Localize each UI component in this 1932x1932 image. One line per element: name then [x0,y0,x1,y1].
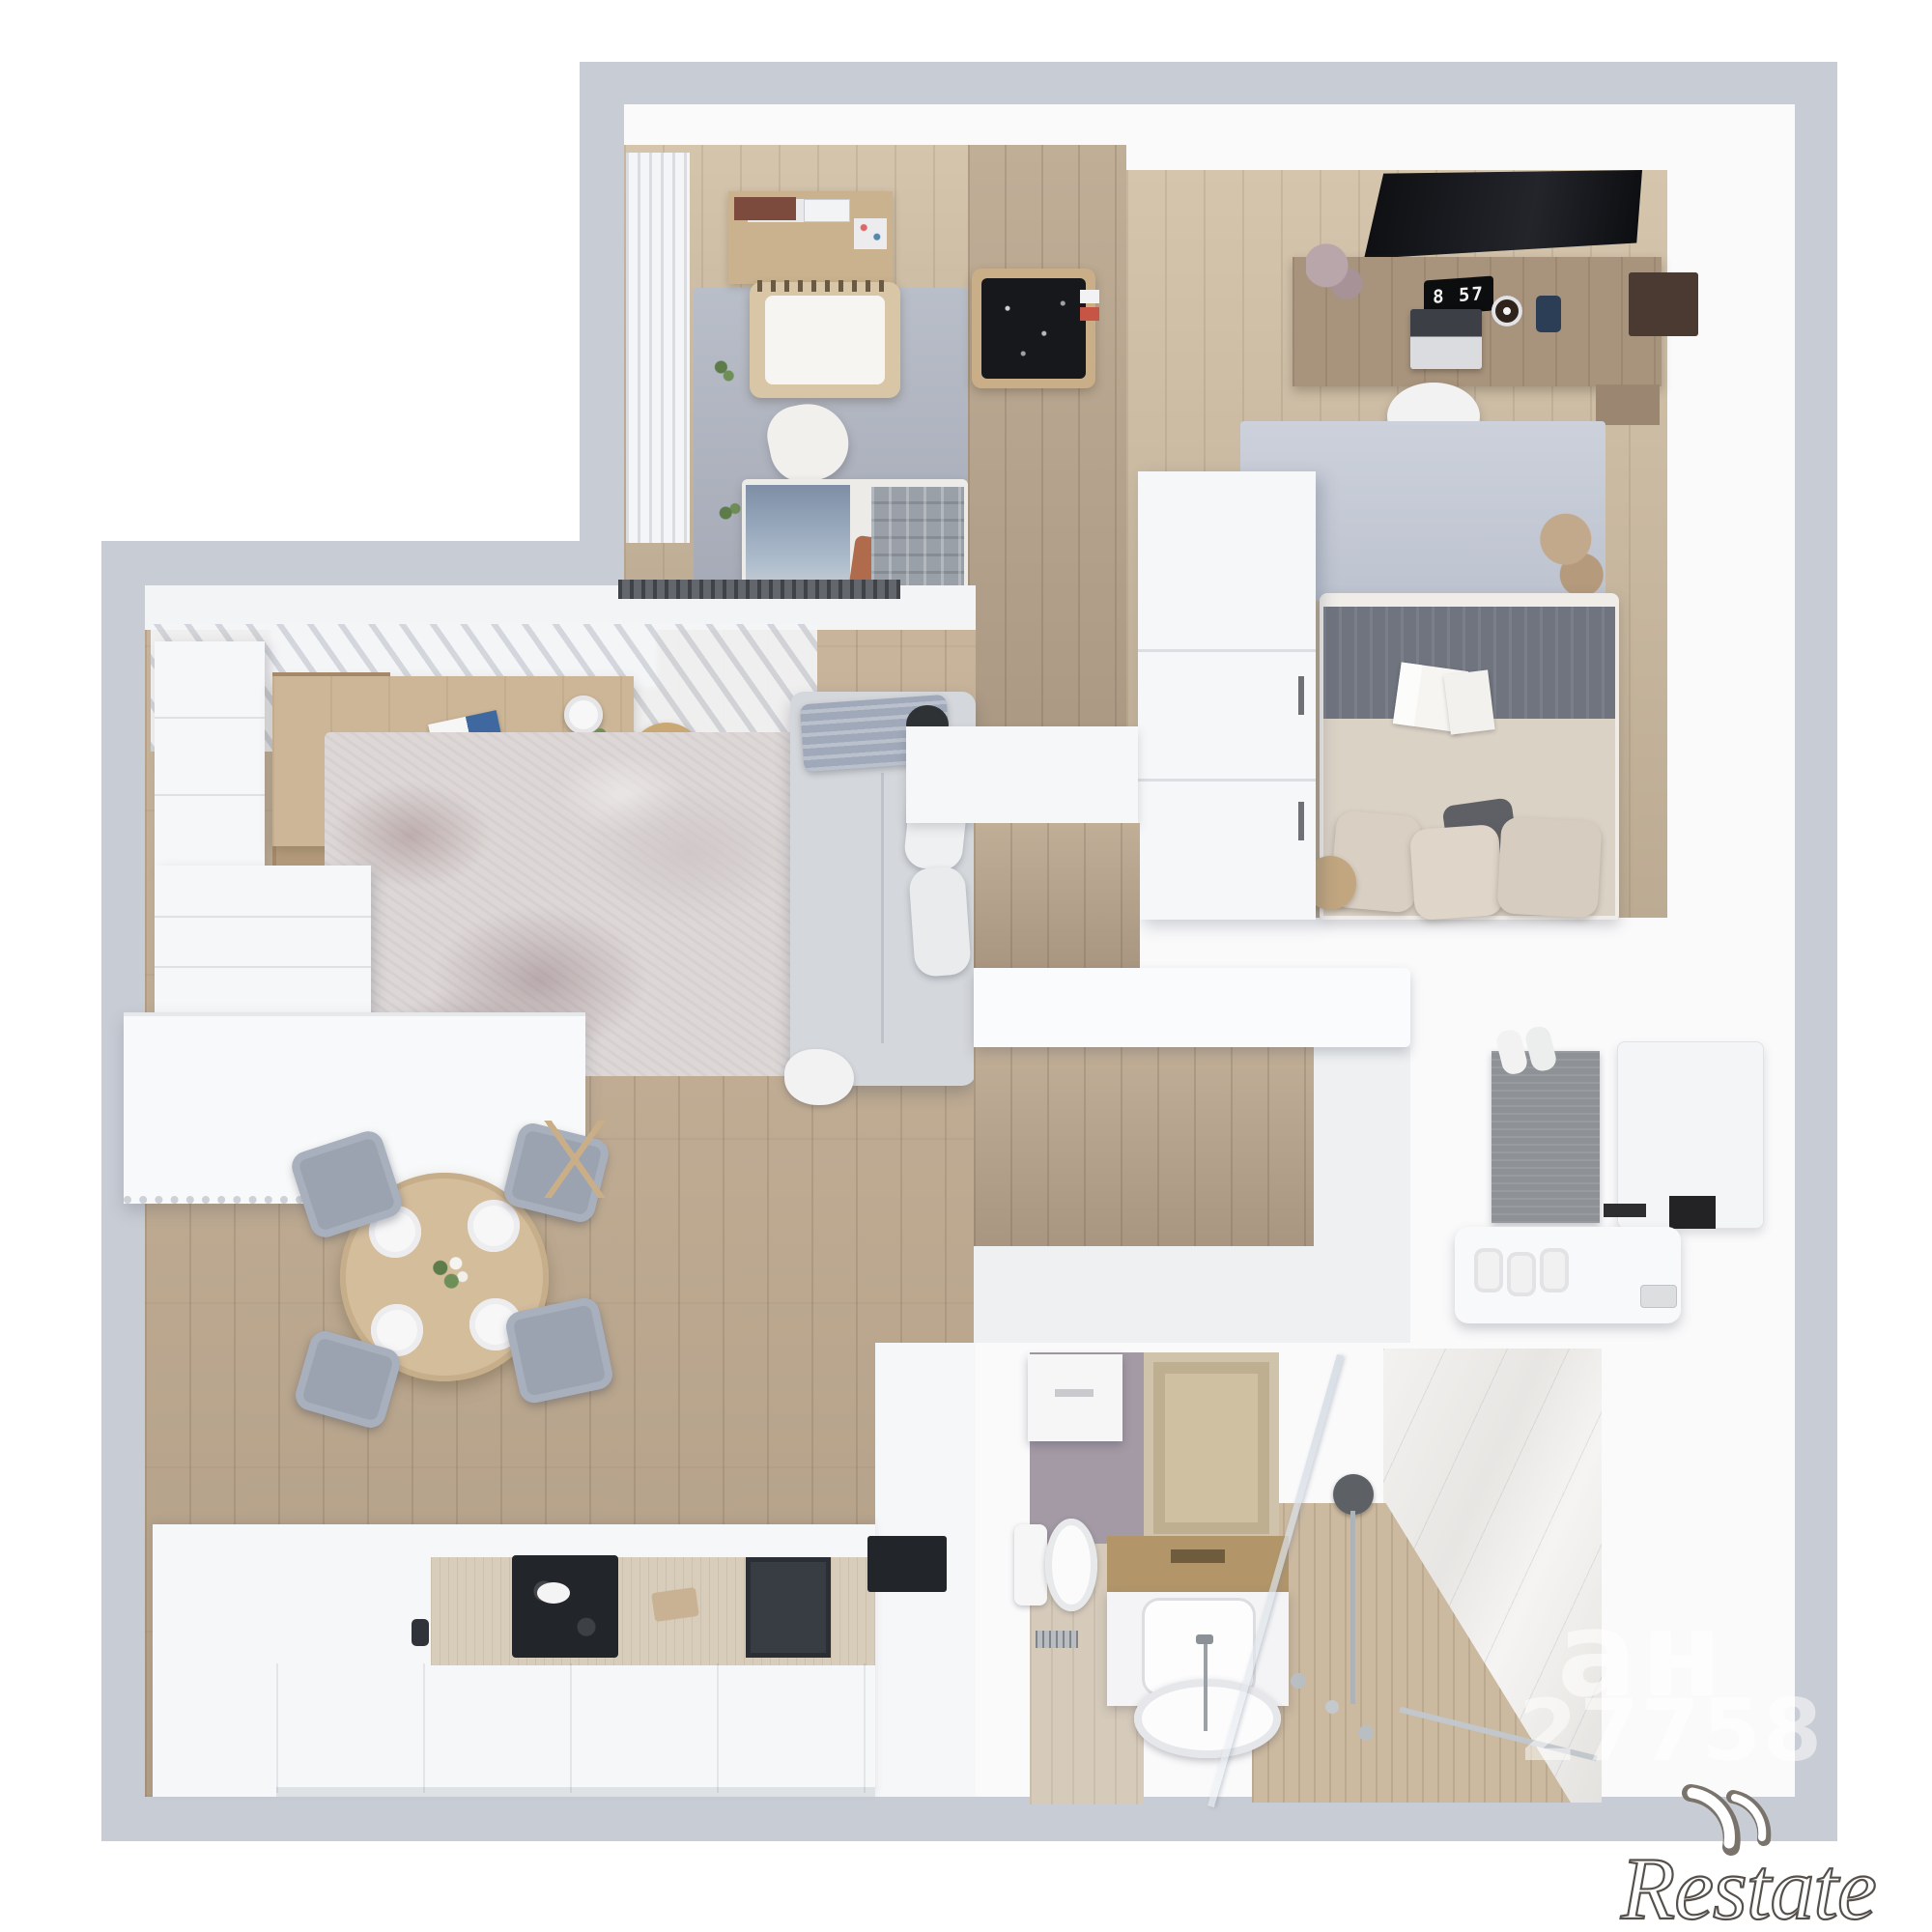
coffee-cup [1492,296,1522,327]
logo-text: Restate [1620,1839,1876,1932]
heater-label [1055,1389,1094,1397]
oval-washbasin [1134,1679,1281,1758]
white-dresser [155,866,371,1020]
nursery-curtain [626,153,690,543]
hallway-threshold [974,1246,1410,1343]
bath-mat [1144,1352,1279,1544]
clock-time: 8 57 [1433,283,1485,308]
smartphone [1536,296,1561,332]
hallway-floor [974,823,1140,970]
chrome-fixture [1325,1700,1339,1714]
wardrobe-handle [1298,802,1304,840]
dresser-seam [155,966,371,968]
laptop [1410,309,1482,369]
floor-drain [1036,1631,1078,1648]
apartment-floor-plan-render: 8 57 [0,0,1932,1932]
hallway-floor [974,1047,1314,1246]
shower-pole [1350,1511,1355,1704]
plate [468,1200,520,1252]
wardrobe-seam [1138,779,1316,781]
built-in-oven [746,1557,831,1658]
water-heater [1028,1354,1122,1441]
wardrobe-handle [1298,676,1304,715]
tall-cabinet [155,641,265,871]
bowl [537,1582,570,1604]
hallway-floor-light [1314,1047,1410,1246]
pillow [1409,824,1504,921]
chrome-fixture [1358,1725,1374,1741]
bathtub-rim [1107,1536,1289,1594]
phone [1640,1285,1677,1308]
floor-faucet [1204,1640,1207,1731]
sofa-seam [881,773,884,1043]
toilet-tank [1014,1524,1047,1605]
plant [715,498,742,527]
bathtub-niche [1171,1549,1225,1563]
open-book [1443,669,1494,734]
cabinet-fronts [276,1663,875,1793]
cooktop [867,1536,947,1592]
bottle [412,1619,429,1646]
sofa-pillow [908,866,972,978]
partition-wall [906,726,1138,823]
toy-box [854,218,887,249]
teddy-bear [1306,241,1364,301]
radiator [618,580,900,599]
picture-frames [734,197,796,220]
shower-head [1333,1474,1374,1515]
throw-pillow [784,1049,854,1105]
white-wardrobe [1138,471,1316,920]
pillow [1496,816,1602,918]
dresser-seam [155,916,371,918]
restate-logo: Restate [1619,1772,1932,1932]
desk-pad [1629,272,1698,336]
chalkboard-table-top [981,278,1086,379]
cabinet-seam [155,717,265,719]
wardrobe-seam [1138,649,1316,652]
flower-vase [427,1250,471,1294]
hallway-console [974,968,1410,1047]
desk-support [1596,384,1660,425]
cabinet-seam [155,794,265,796]
dining-chair [503,1295,615,1406]
crib-rail [757,280,893,292]
towel-roll [1507,1252,1536,1296]
teddy-bear [1534,508,1613,597]
cutting-board [651,1587,699,1622]
door-mat [1492,1051,1600,1223]
crib-mattress [765,296,885,384]
small-toys [1080,290,1099,303]
wall-hook [1604,1204,1646,1217]
books [804,199,850,222]
towel-roll [1474,1248,1503,1293]
chrome-fixture [1291,1673,1306,1689]
toilet [1045,1519,1097,1611]
induction-hob [512,1555,618,1658]
towel-roll [1540,1248,1569,1293]
faucet-spout [1196,1634,1213,1644]
plinth-shadow [276,1787,875,1797]
bar-edge [124,1012,585,1016]
door-hardware [1669,1196,1716,1229]
high-chair-frame [541,1121,609,1198]
plant [711,355,736,384]
